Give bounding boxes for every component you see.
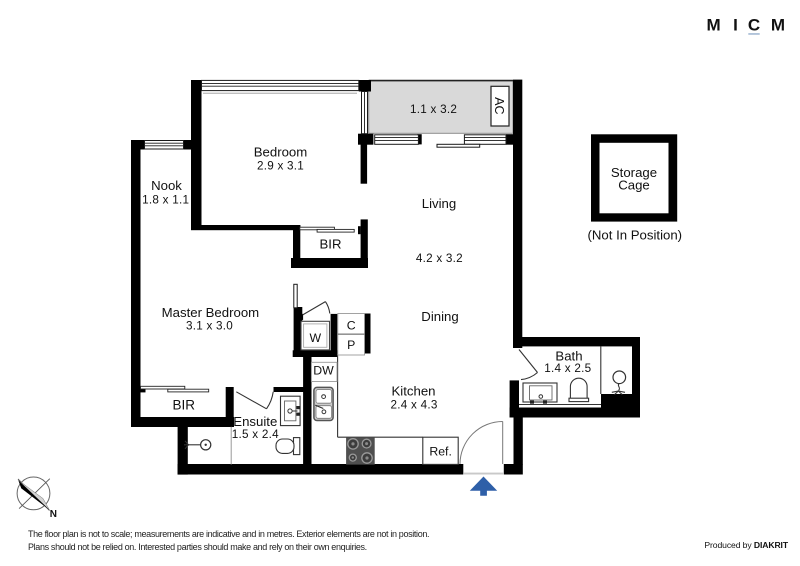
svg-text:P: P: [347, 338, 355, 352]
svg-text:Bedroom: Bedroom: [254, 145, 308, 160]
svg-text:BIR: BIR: [320, 237, 342, 252]
svg-text:1.4 x 2.5: 1.4 x 2.5: [544, 362, 591, 375]
svg-text:Ref.: Ref.: [429, 444, 452, 458]
svg-text:Kitchen: Kitchen: [392, 384, 436, 399]
svg-text:BIR: BIR: [173, 398, 196, 413]
svg-text:AC: AC: [492, 97, 506, 114]
svg-text:2.4 x 4.3: 2.4 x 4.3: [391, 398, 438, 411]
svg-text:The floor plan is not to scale: The floor plan is not to scale; measurem…: [28, 529, 429, 539]
svg-text:M: M: [707, 15, 721, 34]
svg-text:Dining: Dining: [421, 309, 458, 324]
svg-text:Master Bedroom: Master Bedroom: [162, 305, 259, 320]
svg-text:Plans should not be relied on.: Plans should not be relied on. Intereste…: [28, 542, 367, 552]
svg-text:M: M: [771, 15, 785, 34]
svg-text:(Not In Position): (Not In Position): [588, 228, 683, 243]
svg-text:2.9 x 3.1: 2.9 x 3.1: [257, 159, 304, 172]
svg-text:1.8 x 1.1: 1.8 x 1.1: [142, 193, 189, 206]
svg-text:I: I: [733, 15, 738, 34]
svg-text:C: C: [347, 318, 356, 332]
svg-text:Produced by DIAKRIT: Produced by DIAKRIT: [704, 540, 788, 550]
svg-text:Living: Living: [422, 196, 456, 211]
svg-text:Ensuite: Ensuite: [233, 414, 277, 429]
svg-text:1.1 x 3.2: 1.1 x 3.2: [410, 103, 457, 116]
svg-text:DW: DW: [313, 364, 334, 378]
svg-text:C: C: [748, 15, 760, 34]
svg-text:W: W: [309, 331, 321, 345]
svg-text:4.2 x 3.2: 4.2 x 3.2: [416, 252, 463, 265]
svg-text:Nook: Nook: [151, 178, 182, 193]
svg-text:N: N: [50, 509, 57, 520]
svg-text:Cage: Cage: [618, 178, 650, 193]
svg-text:3.1 x 3.0: 3.1 x 3.0: [186, 320, 233, 333]
svg-text:1.5 x 2.4: 1.5 x 2.4: [232, 428, 279, 441]
